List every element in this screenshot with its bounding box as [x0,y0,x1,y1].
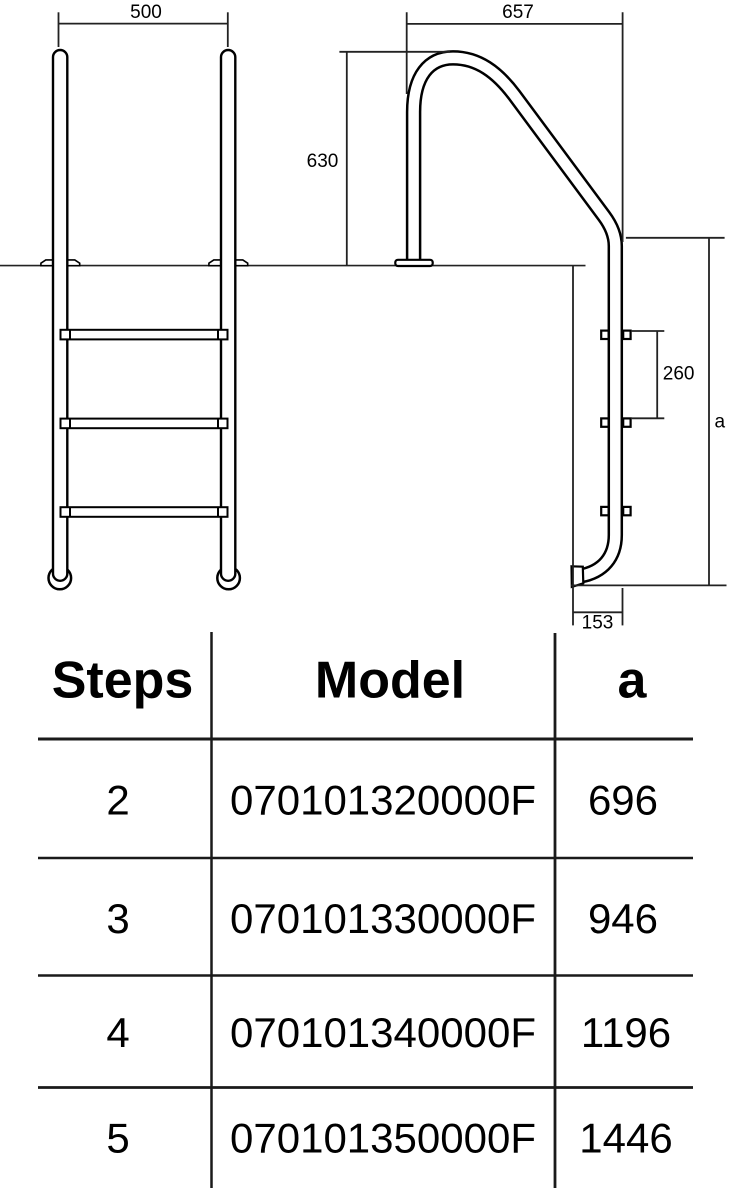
svg-text:4: 4 [106,1009,129,1056]
svg-text:696: 696 [588,776,658,823]
svg-text:260: 260 [663,363,695,384]
svg-text:2: 2 [106,776,129,823]
svg-text:070101320000F: 070101320000F [230,776,536,823]
svg-text:946: 946 [588,895,658,942]
svg-text:630: 630 [307,151,339,172]
svg-text:500: 500 [130,2,162,23]
svg-text:a: a [618,652,648,710]
svg-text:070101340000F: 070101340000F [230,1009,536,1056]
svg-text:Model: Model [315,652,465,710]
svg-text:070101350000F: 070101350000F [230,1115,536,1162]
svg-text:Steps: Steps [52,652,194,710]
svg-text:3: 3 [106,895,129,942]
svg-text:1446: 1446 [579,1115,672,1162]
svg-text:5: 5 [106,1115,129,1162]
svg-text:070101330000F: 070101330000F [230,895,536,942]
svg-text:a: a [715,411,726,432]
svg-text:153: 153 [582,612,614,633]
svg-text:657: 657 [502,2,534,23]
svg-text:1196: 1196 [581,1009,671,1056]
